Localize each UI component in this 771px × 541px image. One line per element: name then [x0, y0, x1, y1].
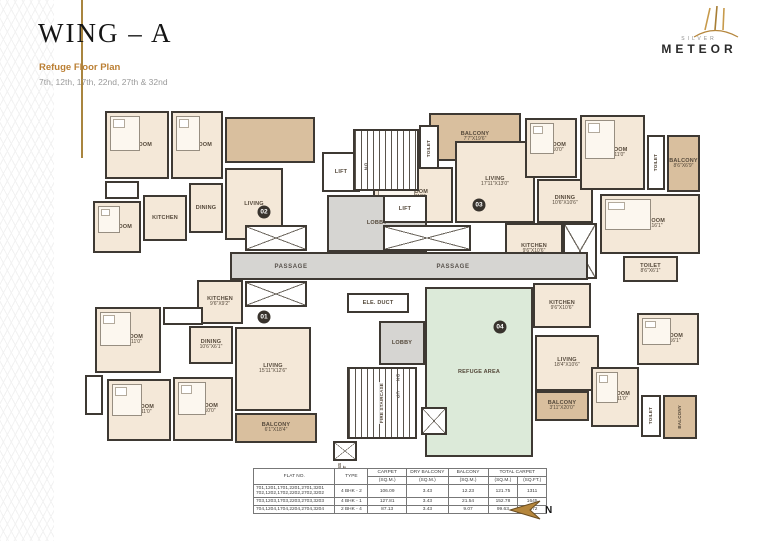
bed-icon	[605, 199, 651, 230]
plan-text: DN	[396, 374, 401, 382]
room-dimensions: 15'11"X12'6"	[259, 369, 287, 375]
fire-staircase: FIRE STAIRCASE	[347, 367, 417, 439]
room-dimensions: 8'6"X6'9"	[674, 164, 694, 170]
toilet: TOILET	[419, 125, 439, 173]
unit-number-badge: 03	[473, 199, 486, 212]
table-row: 704,1204,1704,2204,2704,32042 BHK - 487.…	[254, 506, 547, 514]
room-dimensions: 6'1"X18'4"	[265, 428, 288, 434]
dining: DINING	[189, 183, 223, 233]
balcony: BALCONY3'11"X20'0"	[535, 391, 589, 421]
table-cell: 9.07	[448, 506, 488, 514]
bedroom: BEDROOM11'6"X16'1"	[637, 313, 699, 365]
col-dry-balcony: DRY BALCONY	[407, 469, 448, 477]
balcony: BALCONY	[663, 395, 697, 439]
room-label: ELE. DUCT	[363, 300, 394, 306]
shaft	[383, 225, 471, 251]
table-cell: 87.13	[368, 506, 407, 514]
plan-subtitle: Refuge Floor Plan	[39, 62, 120, 73]
bed-icon	[642, 318, 671, 345]
floor-list: 7th, 12th, 17th, 22nd, 27th & 32nd	[39, 77, 168, 87]
col-flat-no: FLAT NO.	[254, 469, 335, 485]
table-cell: 127.81	[368, 498, 407, 506]
bed-icon	[530, 123, 554, 154]
duct	[333, 441, 357, 461]
bed-icon	[176, 116, 200, 151]
bed-icon	[112, 384, 142, 416]
table-cell: 703,1203,1703,2203,2703,3203	[254, 498, 335, 506]
duct: ELE. DUCT	[347, 293, 409, 313]
bedroom: BEDROOM	[171, 111, 223, 179]
room-label: REFUGE AREA	[458, 369, 500, 375]
bedroom: BEDROOM11'4"X10'0"	[173, 377, 233, 441]
table-cell: 1311	[518, 485, 547, 498]
room-label: LIFT	[399, 206, 411, 212]
shaft	[245, 281, 307, 307]
unit-number-badge: 04	[494, 321, 507, 334]
toilet	[85, 375, 103, 415]
col-type: TYPE	[335, 469, 368, 485]
balcony: BALCONY6'1"X18'4"	[235, 413, 317, 443]
flat-area-table: FLAT NO. TYPE CARPET DRY BALCONY BALCONY…	[253, 468, 547, 514]
table-cell: 701,1201,1701,2201,2701,3201 702,1202,17…	[254, 485, 335, 498]
unit-number-badge: 02	[258, 206, 271, 219]
living: LIVING17'11"X13'0"	[455, 141, 535, 223]
floor-plan-page: WING – A Refuge Floor Plan 7th, 12th, 17…	[0, 0, 771, 541]
unit-number-badge: 01	[258, 311, 271, 324]
room-label: BALCONY	[677, 405, 682, 429]
table-cell: 3.43	[407, 506, 448, 514]
room-dimensions: 17'11"X13'0"	[481, 182, 509, 188]
room-label: DINING	[196, 205, 216, 211]
unit-sqm: (SQ.M.)	[448, 477, 488, 485]
kitchen: KITCHEN9'6"X10'6"	[533, 283, 591, 328]
brand-word-meteor: METEOR	[639, 42, 759, 56]
plan-text: DN	[364, 163, 369, 171]
table-cell: 21.54	[448, 498, 488, 506]
table-row: 701,1201,1701,2201,2701,3201 702,1202,17…	[254, 485, 547, 498]
shaft	[421, 407, 447, 435]
bedroom: BEDROOM12'0"X11'0"	[107, 379, 171, 441]
bedroom: BEDROOM	[93, 201, 141, 253]
table-cell: 4 BHK - 2	[335, 485, 368, 498]
table-cell: 4 BHK - 1	[335, 498, 368, 506]
plan-text: PASSAGE	[274, 264, 307, 270]
balcony: BALCONY8'6"X6'9"	[667, 135, 700, 192]
unit-sqm: (SQ.M.)	[368, 477, 407, 485]
bedroom: BEDROOM11'6"X16'1"	[600, 194, 700, 254]
bedroom: BEDROOM11'6"X10'0"	[525, 118, 577, 178]
bed-icon	[100, 312, 131, 346]
page-title: WING – A	[38, 18, 172, 49]
col-carpet: CARPET	[368, 469, 407, 477]
table-cell: 704,1204,1704,2204,2704,3204	[254, 506, 335, 514]
col-total-carpet: TOTAL CARPET	[488, 469, 546, 477]
room-label: TOILET	[648, 407, 653, 424]
table-cell: 3.43	[407, 485, 448, 498]
unit-sqm: (SQ.M.)	[488, 477, 518, 485]
bed-icon	[178, 382, 206, 415]
room-label: LOBBY	[392, 340, 412, 346]
room-dimensions: 3'11"X20'0"	[549, 406, 574, 412]
shaft	[245, 225, 307, 251]
bedroom: BEDROOM	[105, 111, 169, 179]
table-cell: 12.23	[448, 485, 488, 498]
living: LIVING18'4"X10'6"	[535, 335, 599, 391]
table-cell: 2 BHK - 4	[335, 506, 368, 514]
room-label: LIFT	[335, 169, 347, 175]
room-dimensions: 10'6"X10'6"	[552, 201, 577, 207]
room-label: TOILET	[653, 154, 658, 171]
north-arrow-icon	[508, 500, 542, 520]
kitchen: KITCHEN	[143, 195, 187, 241]
bed-icon	[596, 372, 618, 403]
col-balcony: BALCONY	[448, 469, 488, 477]
room-label: TOILET	[426, 140, 431, 157]
dining: DINING10'6"X6'1"	[189, 326, 233, 364]
toilet: TOILET8'6"X6'1"	[623, 256, 678, 282]
terrace	[225, 117, 315, 163]
floor-plan: BEDROOMBEDROOMLIVINGDININGKITCHENBEDROOM…	[85, 95, 700, 465]
living: LIVING15'11"X12'6"	[235, 327, 311, 411]
room-dimensions: 9'6"X10'6"	[551, 306, 574, 312]
bedroom: BEDROOM13'0"X11'0"	[580, 115, 645, 190]
room-label: KITCHEN	[152, 215, 178, 221]
table-cell: 106.09	[368, 485, 407, 498]
unit-sqft: (SQ.FT.)	[518, 477, 547, 485]
table-cell: 3.43	[407, 498, 448, 506]
room-dimensions: 8'6"X6'1"	[641, 269, 661, 275]
staircase	[353, 129, 419, 191]
unit-sqm: (SQ.M.)	[407, 477, 448, 485]
kitchen: KITCHEN9'6"X9'2"	[197, 280, 243, 324]
north-compass: N	[508, 500, 552, 520]
bed-icon	[110, 116, 140, 151]
room-dimensions: 9'6"X9'2"	[210, 302, 230, 308]
bedroom: BEDROOM13'11"X11'0"	[95, 307, 161, 373]
lobby: LOBBY	[379, 321, 425, 365]
lift: LIFT	[383, 195, 427, 223]
bed-icon	[585, 120, 615, 159]
toilet	[163, 307, 203, 325]
toilet: TOILET	[641, 395, 661, 437]
brand-logo: SILVER METEOR	[639, 6, 759, 56]
toilet	[105, 181, 139, 199]
bedroom: BEDROOM13'0"X11'0"	[591, 367, 639, 427]
room-dimensions: 10'6"X6'1"	[200, 345, 223, 351]
bed-icon	[98, 206, 120, 233]
room-label: FIRE STAIRCASE	[379, 382, 384, 424]
north-label: N	[545, 505, 552, 516]
table-cell: 121.75	[488, 485, 518, 498]
room-dimensions: 18'4"X10'6"	[554, 363, 579, 369]
toilet: TOILET	[647, 135, 665, 190]
table-row: 703,1203,1703,2203,2703,32034 BHK - 1127…	[254, 498, 547, 506]
plan-text: PASSAGE	[436, 264, 469, 270]
plan-text: UP	[396, 391, 401, 398]
